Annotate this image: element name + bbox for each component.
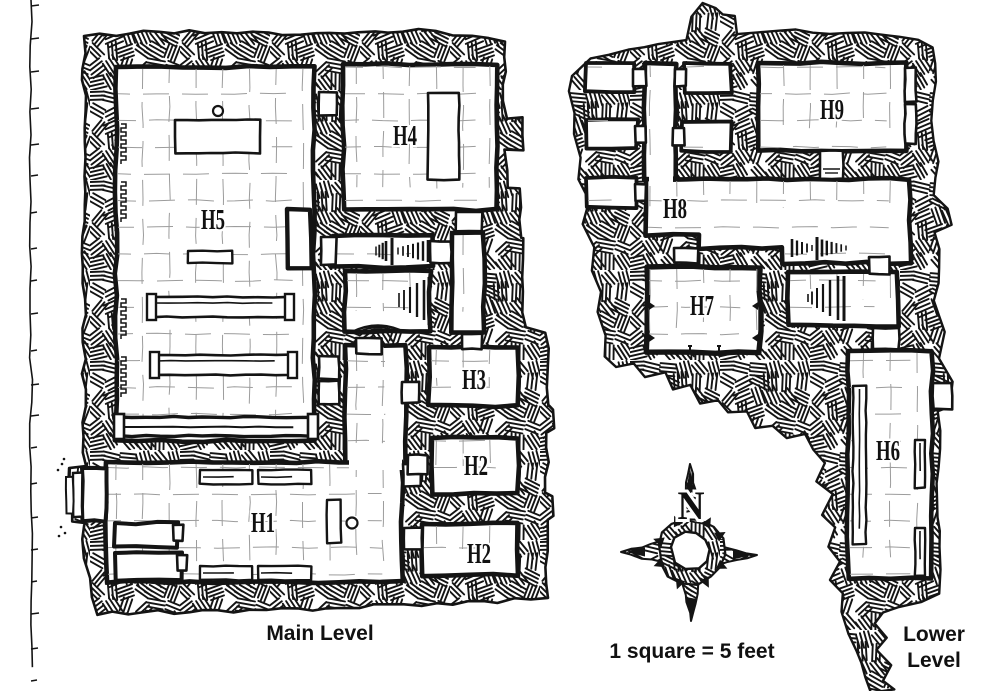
svg-text:H9: H9	[820, 94, 844, 126]
svg-text:H3: H3	[462, 364, 486, 396]
svg-text:H4: H4	[393, 120, 417, 152]
svg-text:H7: H7	[690, 290, 714, 322]
svg-text:1 square = 5 feet: 1 square = 5 feet	[609, 640, 774, 663]
svg-text:N: N	[678, 483, 705, 528]
svg-text:H1: H1	[251, 507, 275, 539]
svg-text:H8: H8	[663, 193, 687, 225]
svg-text:H6: H6	[876, 435, 900, 467]
svg-text:H5: H5	[201, 204, 225, 236]
svg-text:H2: H2	[467, 538, 491, 570]
svg-text:H2: H2	[464, 450, 488, 482]
svg-text:Lower: Lower	[903, 623, 965, 646]
svg-text:Level: Level	[907, 649, 961, 672]
svg-text:Main Level: Main Level	[266, 622, 373, 645]
